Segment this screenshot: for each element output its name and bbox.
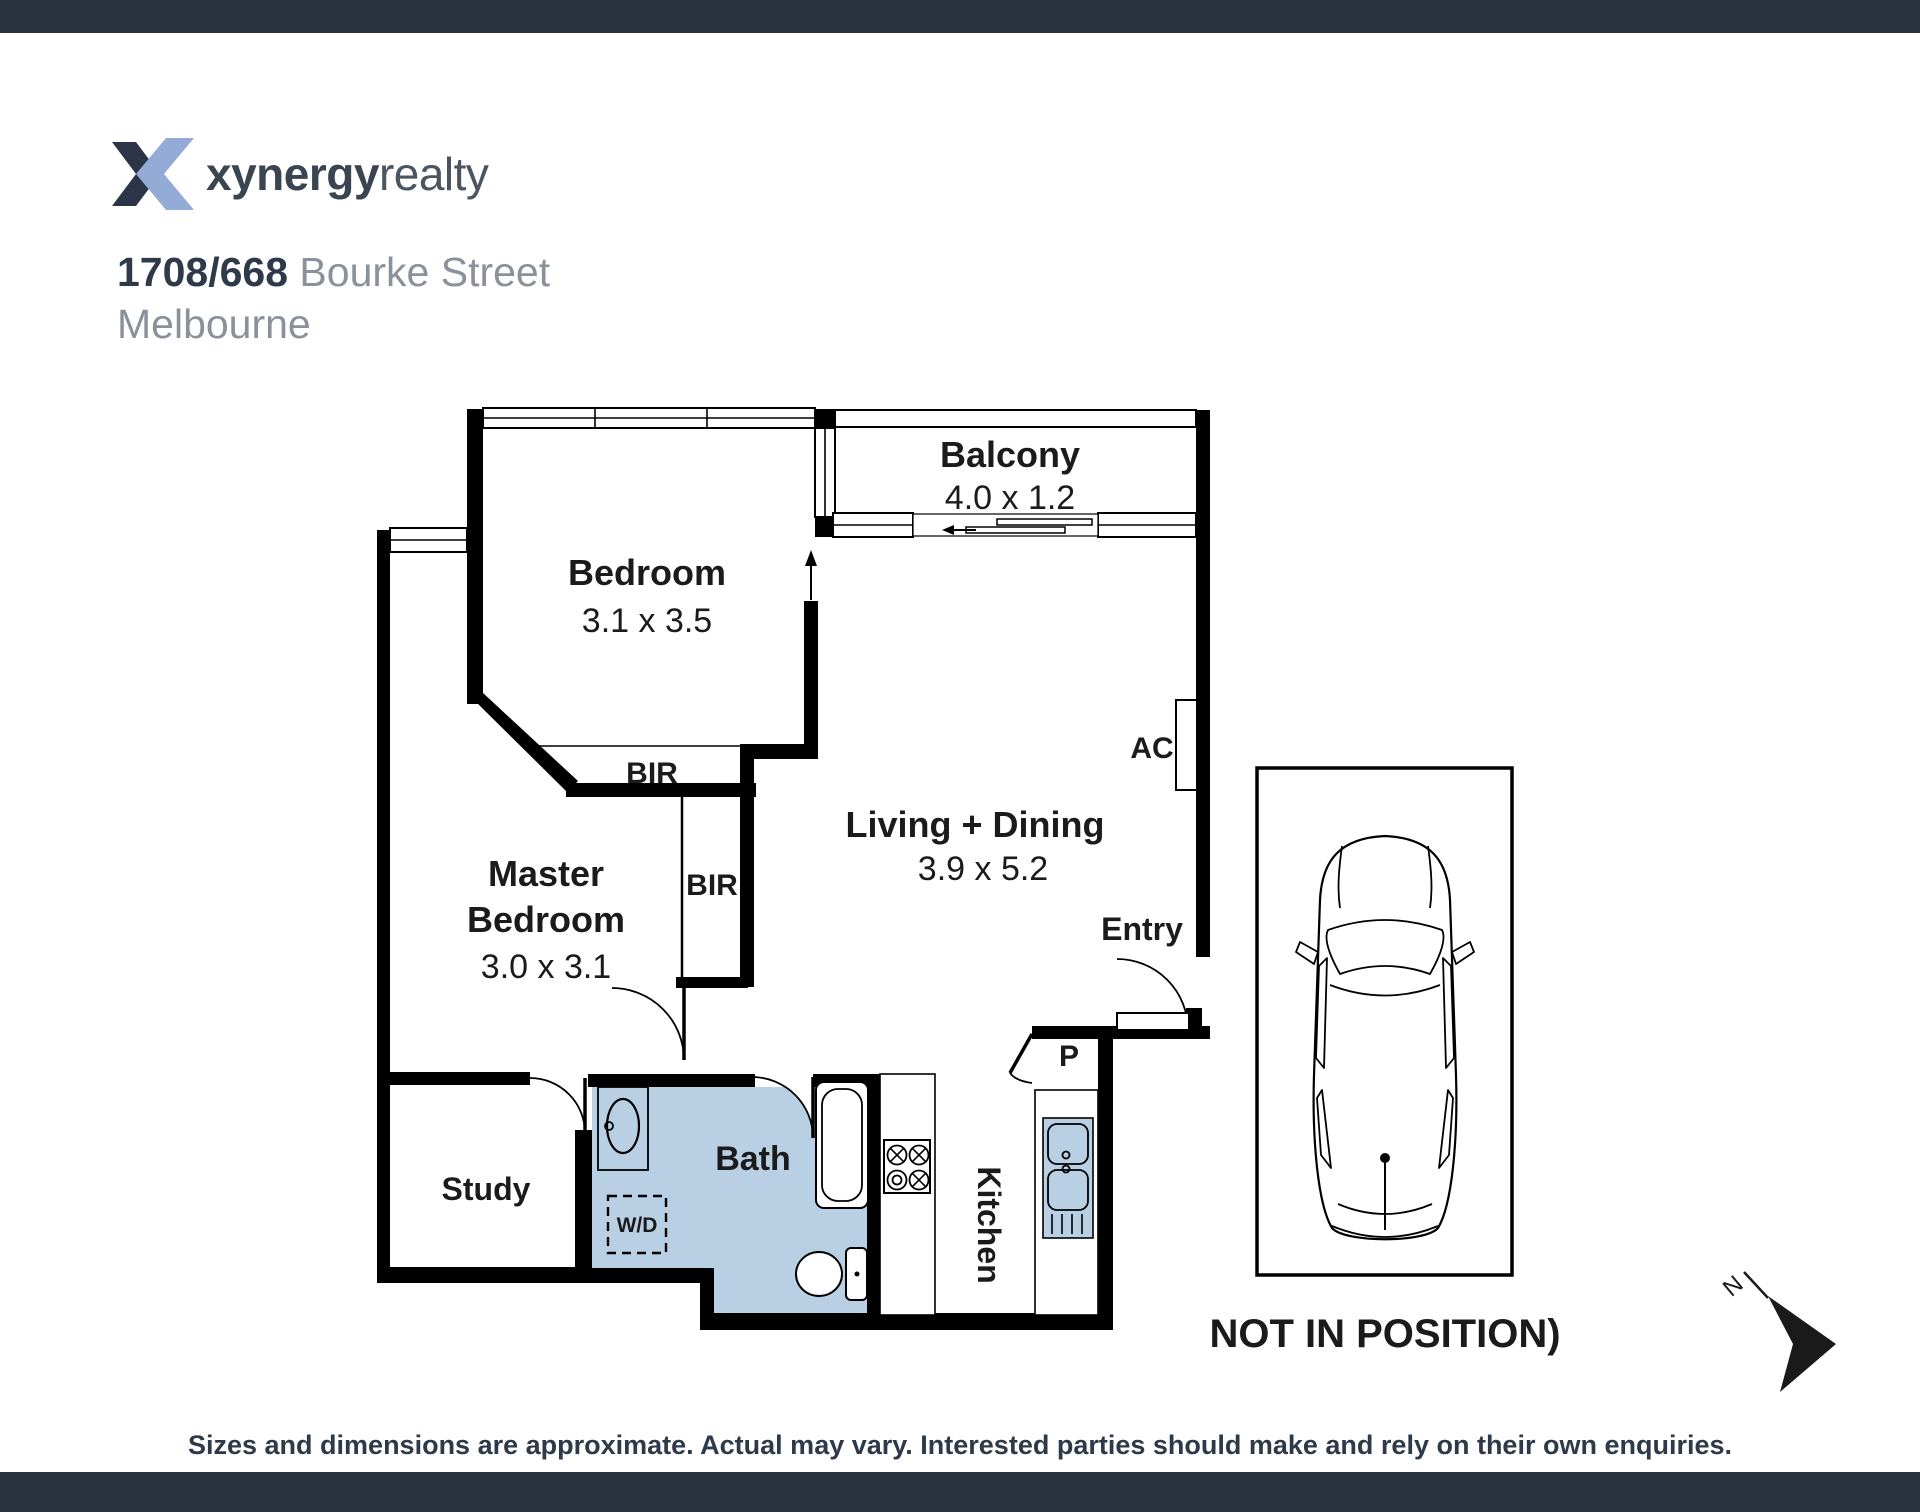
bathtub (816, 1082, 868, 1208)
stove-cooktop (884, 1140, 930, 1193)
toilet (796, 1248, 867, 1300)
floor-plan-drawing: N Bedroom 3.1 x 3.5 Balcony 4.0 x 1.2 Li… (0, 0, 1920, 1512)
kitchen-sink (1043, 1118, 1093, 1238)
floor-plan-page: xynergyrealty 1708/668 Bourke Street Mel… (0, 0, 1920, 1512)
wd-label: W/D (617, 1214, 658, 1237)
kitchen-label: Kitchen (971, 1166, 1007, 1283)
entry-label: Entry (1101, 911, 1183, 947)
balcony-label: Balcony (940, 434, 1080, 475)
car-top-view-illustration (1296, 836, 1474, 1239)
balcony-access-arrow-icon (805, 550, 817, 600)
bedroom-dims: 3.1 x 3.5 (582, 602, 712, 640)
bottom-color-bar (0, 1472, 1920, 1512)
entry-door (1117, 959, 1189, 1030)
bir-label-bedroom: BIR (626, 757, 678, 790)
ac-label: AC (1130, 732, 1173, 765)
north-label: N (1718, 1270, 1749, 1302)
balcony-dims: 4.0 x 1.2 (945, 479, 1075, 517)
master-bedroom-label-2: Bedroom (467, 899, 625, 940)
pantry-door (1010, 1034, 1032, 1083)
living-dining-dims: 3.9 x 5.2 (918, 850, 1048, 888)
master-bedroom-dims: 3.0 x 3.1 (481, 948, 611, 986)
pantry-label: P (1059, 1040, 1079, 1073)
master-bedroom-label-1: Master (488, 853, 604, 894)
ac-unit (1176, 700, 1197, 790)
master-bedroom-door (612, 988, 684, 1060)
disclaimer-text: Sizes and dimensions are approximate. Ac… (0, 1430, 1920, 1461)
bath-label: Bath (715, 1140, 791, 1178)
bedroom-label: Bedroom (568, 552, 726, 593)
living-dining-label: Living + Dining (846, 804, 1105, 845)
study-door (530, 1078, 585, 1133)
kitchen-bench-left (880, 1074, 935, 1315)
study-label: Study (442, 1171, 531, 1207)
balcony-rail (835, 410, 1196, 427)
car-not-in-position-note: NOT IN POSITION) (1209, 1312, 1560, 1356)
bir-label-master: BIR (686, 869, 738, 902)
north-arrow-icon: N (1718, 1270, 1836, 1392)
